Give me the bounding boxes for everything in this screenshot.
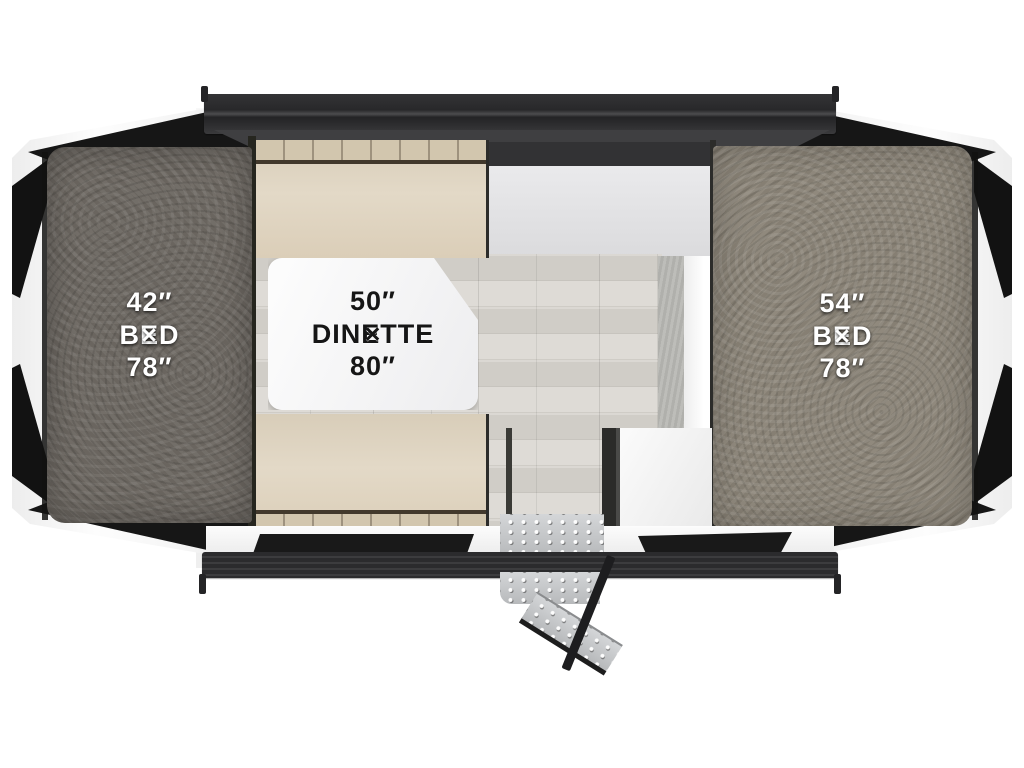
- rail-end-cap: [832, 86, 839, 102]
- bench-seat-front: [256, 140, 486, 258]
- bench-backrest-front: [256, 140, 486, 164]
- left-bed-mattress: BED 42″ × 78″: [47, 147, 252, 523]
- rail-end-cap: [834, 574, 841, 594]
- counter-back-shadow: [486, 142, 714, 168]
- entry-step-platform: [500, 514, 604, 556]
- roof-rail-front: [204, 94, 836, 134]
- step-well-edge-right: [602, 428, 616, 532]
- dinette-dimensions: 50″ × 80″: [350, 285, 396, 384]
- left-bed-dimensions: 42″ × 78″: [127, 286, 173, 385]
- galley-counter: [488, 166, 712, 258]
- bench-seat-rear: [256, 414, 486, 534]
- right-bed-dimensions: 54″ × 78″: [820, 287, 866, 386]
- camper-floorplan: DINETTE 50″ × 80″ BED 42″ × 78″ BED 54″ …: [0, 0, 1024, 768]
- dinette-table: DINETTE 50″ × 80″: [268, 258, 478, 410]
- galley-side-panel: [658, 256, 684, 430]
- galley-wall-strip: [684, 256, 712, 430]
- storage-cabinet: [616, 428, 712, 534]
- rail-end-cap: [199, 574, 206, 594]
- rail-end-cap: [201, 86, 208, 102]
- right-bed-mattress: BED 54″ × 78″: [713, 146, 972, 526]
- right-mattress-gap: [972, 152, 978, 520]
